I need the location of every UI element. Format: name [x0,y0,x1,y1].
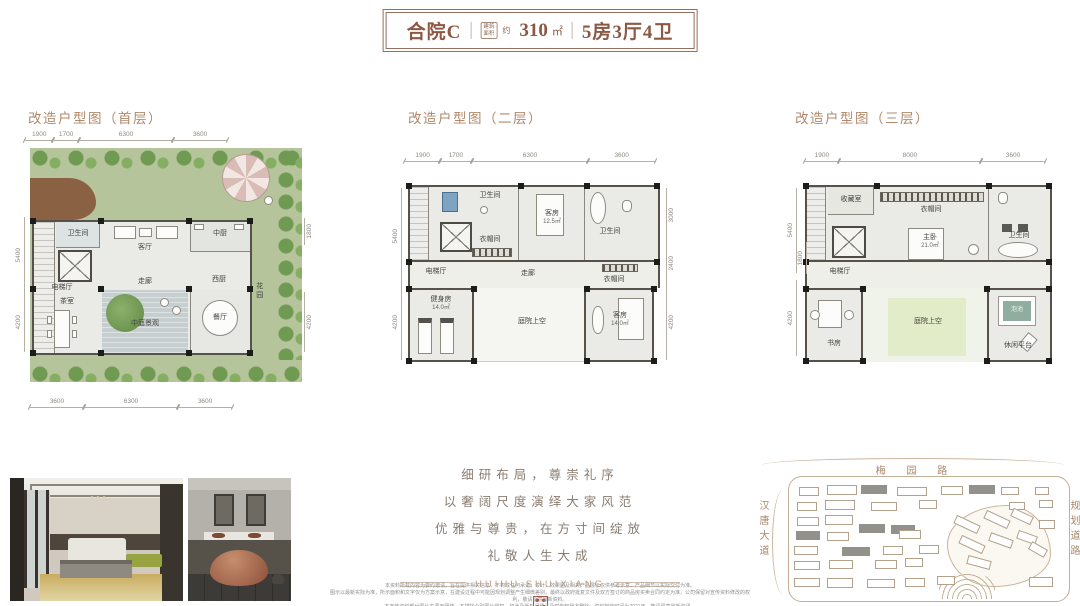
partition-wall [584,187,585,260]
site-map: 梅 园 路 汉唐大道 规划道路 [752,452,1080,604]
area-tag-line2: 面积 [483,31,494,37]
structural-column [860,358,866,364]
photo-ceiling [188,478,291,490]
interior-photo-bathroom [188,478,291,601]
room-label: 收藏室 [828,196,874,205]
sink [234,224,244,230]
left-frame [10,478,24,601]
title-divider [572,22,573,39]
poem-line: 以奢阔尺度演绎大家风范 [390,489,690,516]
structural-column [986,183,992,189]
structural-column [584,183,590,189]
unit-layout: 5房3厅4卫 [582,17,674,44]
room-label: 电梯厅 [34,284,90,293]
poem-line: 礼敬人生大成 [390,543,690,570]
room-label: 衣帽间 [592,276,636,285]
dim-segment: 4200 [391,285,402,360]
room-label: 庭院上空 [893,318,963,327]
room-label: 茶室 [38,298,96,307]
map-building [1039,500,1053,508]
plan2-header: 改造户型图（二层） [408,107,543,127]
plan3-dims-top: 1900 8000 3600 [805,150,1045,161]
mirror [246,494,266,526]
elevator-shaft [58,250,92,282]
map-building-highlight [842,547,870,556]
room-label: 卫生间 [56,230,100,239]
room-label: 卫生间 [586,228,634,237]
map-building-highlight [969,485,995,494]
patio-chair [172,306,181,315]
structural-column [1046,183,1052,189]
room-label: 主卧21.0㎡ [900,234,960,250]
wardrobe [602,264,638,272]
back-wall [50,498,160,538]
room-label: 卫生间 [468,192,512,201]
map-building [827,485,857,495]
plan3-header: 改造户型图（三层） [795,107,930,127]
dim-segment: 6300 [472,150,589,162]
structural-column [30,286,36,292]
title-inner: 合院C 建筑 面积 约 310 ㎡ 5房3厅4卫 [386,12,695,49]
map-building-highlight [859,524,885,533]
staircase [410,187,429,260]
map-building [827,532,849,541]
map-building [1029,577,1053,587]
plan2-dims-left: 5400 4200 [391,188,402,360]
console-table [60,560,132,578]
dim-segment: 3600 [173,129,227,141]
chair [47,330,52,338]
chair [810,310,820,320]
map-building [905,558,923,567]
area-tag: 建筑 面积 [480,22,497,39]
dim-segment: 6300 [84,396,178,408]
room-label: 走廊 [102,278,188,287]
disclaimer-line: 图示以最新实际为准，所示面积和文字仅为方案示意，在建设过程中可能因规划调整产生细… [330,590,750,604]
stool [968,244,979,255]
floor-plan-third: 1900 8000 3600 收藏室 衣帽间 主卧21.0㎡ 卫生间 电梯厅 书… [770,140,1080,400]
dim-segment: 4200 [14,293,25,352]
brochure-page: 合院C 建筑 面积 约 310 ㎡ 5房3厅4卫 改造户型图（首层） 改造户型图… [0,0,1080,606]
map-building [827,578,853,588]
area-approx: 约 [502,25,510,36]
structural-column [874,183,880,189]
garden-table [264,196,273,205]
structural-column [803,358,809,364]
floor-plan-first: 1900 1700 6300 3600 卫生间 电梯厅 茶室 客厅 中厨 走 [14,126,316,418]
dim-segment: 3600 [588,150,655,162]
structural-column [651,358,657,364]
room-label: 卫生间 [988,232,1050,241]
copper-basin [212,533,225,538]
map-building [919,545,939,554]
stool [272,574,284,584]
dim-segment: 5400 [14,217,25,293]
desk [818,300,842,328]
dim-segment: 4200 [666,285,677,360]
dim-segment: 5400 [391,188,402,285]
map-building [799,487,819,496]
structural-column [186,350,192,356]
map-building [883,546,903,555]
patio-chair [160,298,169,307]
road-label-top: 梅 园 路 [752,462,1080,477]
dim-segment: 1800 [796,242,807,274]
disclaimer: 本资料所载内容为要约邀请，旨在提供相关信息，不构成任何承诺；设计、效果图及相关产… [330,583,750,606]
plan3-dim-4200: 4200 [786,280,797,356]
dim-segment: 8000 [839,150,981,162]
room-label: 电梯厅 [815,268,865,277]
structural-column [471,358,477,364]
rug [40,574,162,601]
disclaimer-line: 本资料所载内容为要约邀请，旨在提供相关信息，不构成任何承诺；设计、效果图及相关产… [330,583,750,590]
structural-column [984,286,990,292]
room-label: 花园 [254,282,263,300]
dim-segment: 4200 [304,292,315,352]
structural-column [584,358,590,364]
tree-row-right [276,148,302,360]
structural-column [654,183,660,189]
toilet [622,200,632,212]
coffee-table [139,228,152,237]
room-label: 泡池 [1003,307,1031,315]
map-building [899,530,921,539]
structural-column [1046,358,1052,364]
road-label-left: 汉唐大道 [755,500,770,560]
toilet [998,192,1008,204]
elevator-shaft [832,226,866,258]
map-building [829,560,853,569]
dim-segment: 2400 [666,242,677,285]
room-label: 衣帽间 [468,236,512,245]
map-building [797,502,817,511]
unit-model: 合院C [407,17,462,44]
structural-column [1046,259,1052,265]
dim-segment: 3600 [178,396,232,408]
map-building [794,561,820,570]
room-label: 中厨 [190,230,250,239]
plan2-dims-top: 1900 1700 6300 3600 [405,150,655,161]
structural-column [471,286,477,292]
staircase [807,187,826,260]
map-building-highlight [796,531,820,540]
structural-column [406,286,412,292]
map-building [794,546,818,555]
room-label: 庭院上空 [502,318,562,327]
right-panel [160,484,183,601]
treadmill [440,318,454,354]
sink [1002,224,1012,232]
map-building [797,517,819,526]
copper-basin [248,533,261,538]
map-building [1035,487,1049,495]
mirror [214,494,234,526]
room-label: 客房14.0㎡ [598,312,642,328]
structural-column [98,350,104,356]
interior-photo-living [10,478,183,601]
dim-segment: 6300 [79,129,173,141]
room-label: 中庭景观 [102,320,188,329]
room-label: 客厅 [102,244,188,253]
structural-column [30,218,36,224]
wardrobe [880,192,984,202]
title-box: 合院C 建筑 面积 约 310 ㎡ 5房3厅4卫 [383,9,698,52]
map-building [941,486,963,495]
sofa [156,226,178,239]
structural-column [860,286,866,292]
map-building [937,576,955,585]
partition-wall [518,187,519,260]
structural-column [1046,286,1052,292]
map-building [919,500,937,509]
dim-segment: 1800 [304,218,315,245]
sink [480,206,488,214]
plan1-dims-bottom: 3600 6300 3600 [30,396,232,407]
dim-segment: 1900 [805,150,839,162]
dim-segment: 3000 [666,188,677,242]
area-value: 310 [519,20,548,42]
title-divider [470,22,471,39]
map-building [1039,520,1055,529]
shower [442,192,458,212]
gazebo [222,154,270,202]
chair [72,330,77,338]
room-label: 书房 [807,340,861,349]
structural-column [406,259,412,265]
partition-wall [988,187,989,260]
stove [194,224,204,230]
map-building [867,579,895,588]
dim-segment: 4200 [786,280,797,356]
bathtub [998,242,1038,258]
map-building [825,515,853,525]
structural-column [984,358,990,364]
copper-bathtub [210,550,268,586]
structural-column [406,183,412,189]
map-building [871,502,897,511]
chair [844,310,854,320]
dim-segment: 1900 [25,129,53,141]
courtyard-green [888,298,966,356]
poem-line: 细研布局，尊崇礼序 [390,462,690,489]
map-building [897,487,927,496]
plan3-dim-1800: 1800 [796,242,807,274]
map-building [794,578,820,587]
room-label: 走廊 [498,270,558,279]
tree-row-bottom [30,364,302,382]
wood-deck [30,178,96,220]
structural-column [30,350,36,356]
sink [1018,224,1028,232]
map-boundary [788,476,1070,602]
structural-column [651,286,657,292]
map-building [875,560,897,569]
structural-column [803,183,809,189]
room-label: 客房12.5㎡ [520,210,584,226]
room-label: 电梯厅 [412,268,460,277]
tea-table [54,310,70,348]
room-label: 衣帽间 [876,206,986,215]
plan1-dim-right-4200: 4200 [304,292,315,352]
plan1-dims-top: 1900 1700 6300 3600 [25,129,227,140]
structural-column [406,358,412,364]
area-unit: ㎡ [552,23,563,39]
dim-segment: 1900 [405,150,440,162]
structural-column [654,259,660,265]
structural-column [98,218,104,224]
sofa-bed [68,538,126,562]
plan2-dims-right: 3000 2400 4200 [666,188,677,360]
structural-column [803,286,809,292]
wardrobe [472,248,512,257]
floor-plan-second: 1900 1700 6300 3600 卫生间 衣帽间 客房12.5㎡ 卫生间 … [388,140,688,400]
plan1-dim-right-1800: 1800 [304,218,315,245]
room-label: 餐厅 [202,314,238,323]
plan1-header: 改造户型图（首层） [28,107,163,127]
room-label: 西厨 [194,276,244,285]
structural-column [247,286,253,292]
map-building [825,500,855,510]
road-line-left [772,490,783,594]
sofa [114,226,136,239]
structural-column [186,286,192,292]
map-building-highlight [861,485,887,494]
dim-segment: 1700 [440,150,471,162]
structural-column [247,218,253,224]
structural-column [98,286,104,292]
structural-column [247,350,253,356]
dim-segment: 1700 [53,129,78,141]
dim-segment: 3600 [30,396,84,408]
structural-column [584,286,590,292]
map-building [905,578,925,587]
room-label: 健身房14.0㎡ [410,296,472,312]
chair [72,316,77,324]
room-label: 休闲平台 [992,342,1044,351]
bathtub [590,192,606,224]
poem-line: 优雅与尊贵，在方寸间绽放 [390,516,690,543]
dim-segment: 3600 [981,150,1045,162]
treadmill [418,318,432,354]
map-building [1001,487,1019,495]
plan1-dims-left: 5400 4200 [14,217,25,352]
structural-column [186,218,192,224]
chair [47,316,52,324]
structural-column [518,183,524,189]
